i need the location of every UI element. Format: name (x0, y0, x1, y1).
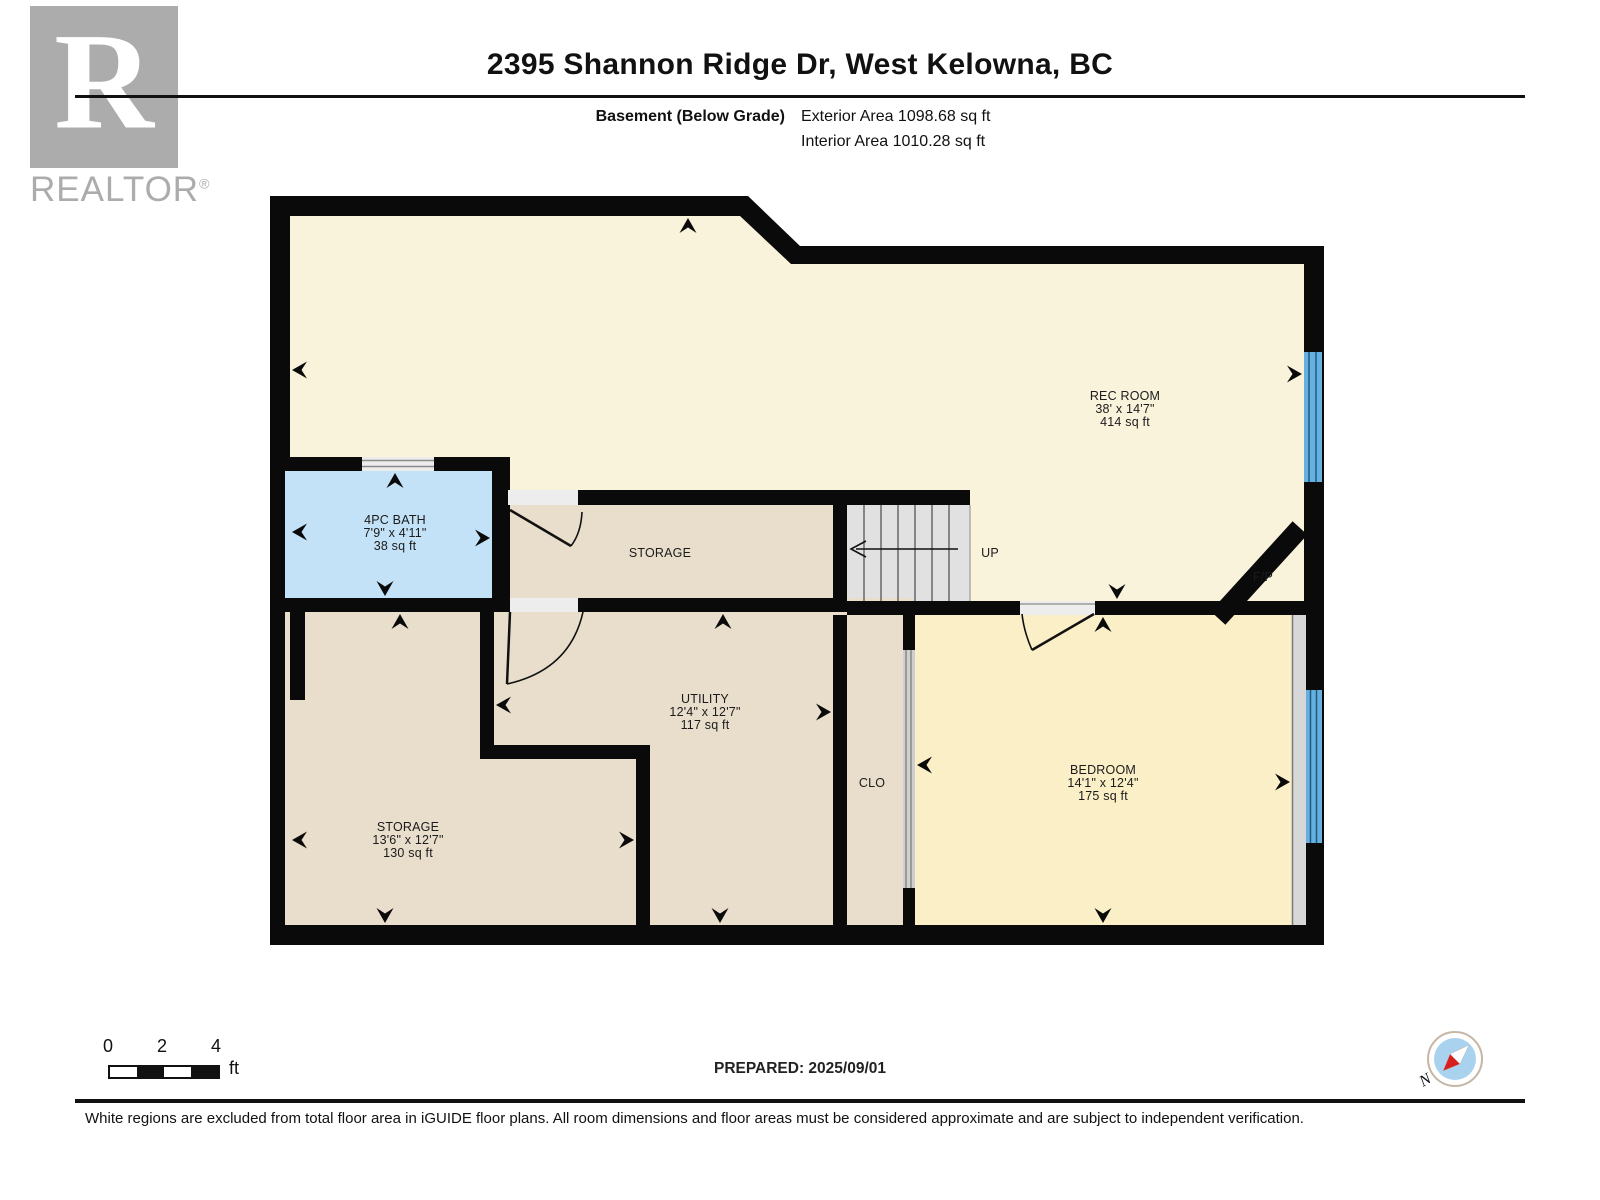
title-divider-line (75, 95, 1525, 98)
bedroom-window (1306, 690, 1322, 843)
rec-room-dims: 38' x 14'7" (1095, 402, 1154, 416)
storage-utility-closet-floor (285, 598, 915, 925)
storage-dims: 13'6" x 12'7" (372, 833, 443, 847)
realtor-wordmark: REALTOR® (30, 170, 210, 210)
room-rec-room: REC ROOM 38' x 14'7" 414 sq ft (1090, 389, 1160, 429)
utility-dims: 12'4" x 12'7" (669, 705, 740, 719)
bedroom-dims: 14'1" x 12'4" (1067, 776, 1138, 790)
stairs-floor (847, 505, 970, 601)
storage-name: STORAGE (377, 820, 439, 834)
rec-room-area: 414 sq ft (1100, 415, 1150, 429)
realtor-watermark: R REALTOR® (30, 6, 210, 210)
bedroom-window-recess (1292, 615, 1306, 925)
stairs-up-label: UP (981, 546, 999, 560)
floor-plan-page: R REALTOR® 2395 Shannon Ridge Dr, West K… (0, 0, 1600, 1200)
bedroom-area: 175 sq ft (1078, 789, 1128, 803)
realtor-logo-letter: R (54, 12, 154, 150)
storage-mid-name: STORAGE (629, 546, 691, 560)
bath-name: 4PC BATH (364, 513, 426, 527)
realtor-logo-box: R (30, 6, 178, 168)
storage-area: 130 sq ft (383, 846, 433, 860)
closet-sliding-door (903, 650, 915, 888)
rec-room-window (1304, 352, 1322, 482)
rec-room-name: REC ROOM (1090, 389, 1160, 403)
bedroom-name: BEDROOM (1070, 763, 1136, 777)
room-storage-mid: STORAGE (629, 546, 691, 560)
floor-plan: REC ROOM 38' x 14'7" 414 sq ft 4PC BATH … (0, 0, 1600, 1200)
fireplace-label: F/P (1253, 570, 1273, 584)
utility-area: 117 sq ft (681, 718, 730, 732)
realtor-wordmark-text: REALTOR (30, 170, 199, 209)
bath-area: 38 sq ft (374, 539, 417, 553)
utility-name: UTILITY (681, 692, 729, 706)
bath-dims: 7'9" x 4'11" (363, 526, 426, 540)
registered-symbol: ® (199, 175, 210, 191)
closet-label: CLO (859, 776, 885, 790)
